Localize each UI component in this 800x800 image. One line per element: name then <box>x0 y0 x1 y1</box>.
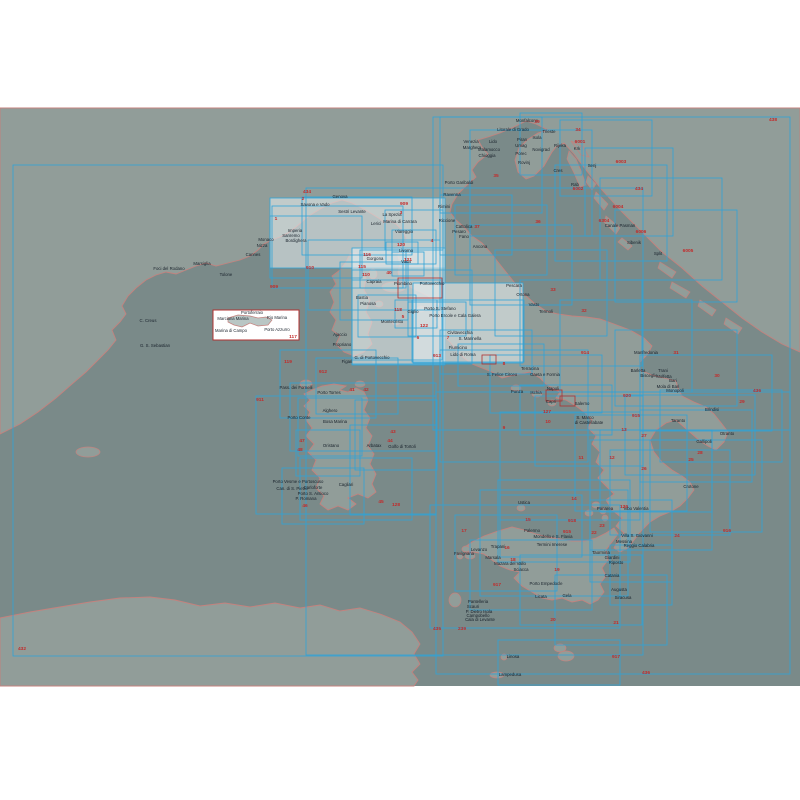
chart-number-label: 917 <box>493 582 501 588</box>
place-label: Bari <box>669 378 677 383</box>
chart-number-label: 37 <box>474 224 480 230</box>
place-label: Porto S. Stefano <box>424 306 456 311</box>
chart-number-label: 22 <box>591 530 597 536</box>
place-label: Novigrad <box>532 147 550 152</box>
place-label: Figari <box>342 359 353 364</box>
place-label: Lido di Roma <box>450 352 476 357</box>
inset-chart-number: 117 <box>289 334 297 340</box>
place-label: Gallipoli <box>696 439 711 444</box>
inset-place-label: Marciana Marina <box>217 316 249 321</box>
chart-number-label: 32 <box>581 308 587 314</box>
chart-number-label: 239 <box>458 626 466 632</box>
place-label: Portovecchio <box>420 281 445 286</box>
place-label: Tolone <box>220 272 233 277</box>
place-label: Ravenna <box>443 192 461 197</box>
chart-number-label: 915 <box>632 413 640 419</box>
chart-number-label: 5 <box>402 314 405 320</box>
place-label: Giglio <box>408 309 420 314</box>
place-label: Litorale di Grado <box>497 127 529 132</box>
chart-number-label: 436 <box>753 388 761 394</box>
chart-number-label: 920 <box>623 393 631 399</box>
chart-number-label: 110 <box>362 272 370 278</box>
place-label: Linosa <box>507 654 520 659</box>
chart-number-label: 7 <box>447 335 450 341</box>
chart-number-label: 432 <box>18 646 26 652</box>
place-label: Riccione <box>439 218 456 223</box>
place-label: Krk <box>574 146 581 151</box>
chart-number-label: 24 <box>674 533 680 539</box>
place-label: Marsiglia <box>193 261 211 266</box>
place-label: Piombino <box>394 281 413 286</box>
small-island <box>449 593 461 607</box>
place-label: Cagliari <box>339 482 354 487</box>
place-label: Reggio Calabria <box>624 543 655 548</box>
place-label: Siracusa <box>615 595 632 600</box>
chart-number-label: 35 <box>493 173 499 179</box>
place-label: Chioggia <box>479 153 497 158</box>
chart-number-label: 116 <box>363 252 371 258</box>
place-label: Viareggio <box>395 229 414 234</box>
chart-number-label: 23 <box>599 523 605 529</box>
small-island <box>517 505 525 511</box>
chart-number-label: 11 <box>578 455 583 461</box>
place-label: Favignana <box>454 551 475 556</box>
place-label: Lampedusa <box>499 672 522 677</box>
chart-number-label: 12 <box>609 455 615 461</box>
place-label: Cres <box>553 168 562 173</box>
chart-catalog-page: PortoferraioMarciana MarinaRio MarinaMar… <box>0 0 800 800</box>
place-label: G. S. Sebastian <box>140 343 171 348</box>
place-label: Trani <box>658 368 668 373</box>
place-label: Savona e Vado <box>300 202 330 207</box>
place-label: Isola <box>532 135 542 140</box>
chart-number-label: 120 <box>397 242 405 248</box>
chart-number-label: 2 <box>302 196 305 202</box>
inset-place-label: Rio Marina <box>267 315 288 320</box>
chart-number-label: 41 <box>349 387 355 393</box>
chart-number-label: 44 <box>387 438 393 444</box>
place-label: Oristano <box>323 443 340 448</box>
place-label: G. di Portovecchio <box>354 355 390 360</box>
chart-number-label: 6 <box>417 335 420 341</box>
place-label: Vasto <box>529 302 540 307</box>
chart-number-label: 130 <box>620 504 628 510</box>
chart-number-label: 6002 <box>573 186 584 192</box>
place-label: Porto Torres <box>317 390 340 395</box>
chart-number-label: 910 <box>306 265 314 271</box>
chart-number-label: 918 <box>568 518 576 524</box>
place-label: Ischia <box>530 390 542 395</box>
place-label: Ortona <box>516 292 530 297</box>
place-label: Bosa Marina <box>323 419 348 424</box>
chart-number-label: 43 <box>390 429 396 435</box>
place-label: Crotone <box>683 484 699 489</box>
place-label: Marina di Carrara <box>383 219 417 224</box>
place-label: Porto Garibaldi <box>445 180 474 185</box>
chart-number-label: 18 <box>510 557 516 563</box>
place-label: Pescara <box>506 283 522 288</box>
chart-number-label: 916 <box>723 528 731 534</box>
place-label: Rijeka <box>554 143 567 148</box>
place-label: Porec <box>515 151 527 156</box>
chart-number-label: 436 <box>642 670 650 676</box>
place-label: Ancona <box>473 244 488 249</box>
chart-number-label: 25 <box>688 457 694 463</box>
place-label: Terracina <box>521 366 539 371</box>
place-label: S. Felice Circeo <box>487 372 518 377</box>
chart-number-label: 47 <box>299 438 305 444</box>
place-label: Bordighera <box>285 238 307 243</box>
place-label: Rovinj <box>518 160 530 165</box>
place-label: Taranto <box>671 418 686 423</box>
place-label: Capraia <box>366 279 382 284</box>
place-label: P. Romana <box>296 496 318 501</box>
place-label: Civitavecchia <box>447 330 473 335</box>
chart-number-label: 6001 <box>575 139 586 145</box>
chart-number-label: 27 <box>641 433 647 439</box>
chart-number-label: 9 <box>503 425 506 431</box>
inset-place-label: Portoferraio <box>241 310 264 315</box>
place-label: Augusta <box>611 587 627 592</box>
chart-number-label: 26 <box>641 466 647 472</box>
place-label: Porto Vesme e Portoscuso <box>273 479 324 484</box>
place-label: Panarea <box>597 506 614 511</box>
chart-number-label: 42 <box>363 387 369 393</box>
place-label: Manfredonia <box>634 350 658 355</box>
place-label: Canale Pasman <box>605 223 636 228</box>
place-label: Salerno <box>575 401 590 406</box>
place-label: Ustica <box>518 500 531 505</box>
place-label: Catania <box>605 573 620 578</box>
chart-number-label: 48 <box>297 447 303 453</box>
small-island <box>355 381 365 387</box>
place-label: Alghero <box>323 408 338 413</box>
place-label: Umag <box>515 143 527 148</box>
chart-number-label: 6006 <box>636 229 647 235</box>
place-label: Nizza <box>257 243 268 248</box>
place-label: Senj <box>588 163 597 168</box>
place-label: Rimini <box>438 204 450 209</box>
place-label: Ponza <box>511 389 524 394</box>
inset-place-label: Marina di Campo <box>215 328 248 333</box>
chart-number-label: 28 <box>697 450 703 456</box>
place-label: Porto Ercole e Cala Galera <box>429 313 481 318</box>
place-label: Golfo di Tortoli <box>388 444 415 449</box>
chart-number-label: 30 <box>714 373 720 379</box>
chart-number-label: 915 <box>563 529 571 535</box>
chart-number-label: 14 <box>571 496 577 502</box>
place-label: Montecristo <box>381 319 404 324</box>
place-label: Arbatax <box>367 443 383 448</box>
chart-number-label: 6003 <box>616 159 627 165</box>
chart-number-label: 4 <box>431 238 434 244</box>
chart-number-label: 128 <box>392 502 400 508</box>
place-label: Sciacca <box>513 567 529 572</box>
place-label: Termoli <box>539 309 553 314</box>
chart-number-label: 118 <box>394 307 402 313</box>
place-label: S. Marinella <box>459 336 482 341</box>
place-label: Ajaccio <box>333 332 347 337</box>
place-label: Propriano <box>333 342 352 347</box>
small-island <box>76 447 100 457</box>
place-label: Riposto <box>609 560 624 565</box>
place-label: Palermo <box>524 528 541 533</box>
chart-number-label: 6005 <box>683 248 694 254</box>
general-chart-area <box>413 283 523 363</box>
place-label: Genova <box>332 194 348 199</box>
place-label: Capri <box>546 399 556 404</box>
place-label: Termini Imerese <box>537 542 568 547</box>
chart-number-label: 438 <box>769 117 777 123</box>
chart-number-label: 127 <box>543 409 551 415</box>
chart-number-label: 3 <box>400 210 403 216</box>
chart-number-label: 434 <box>635 186 643 192</box>
place-label: Otranto <box>720 431 735 436</box>
chart-number-label: 121 <box>404 257 412 263</box>
place-label: Fano <box>459 234 469 239</box>
chart-number-label: 8 <box>503 361 506 367</box>
chart-number-label: 46 <box>302 503 308 509</box>
place-label: Carloforte <box>304 485 323 490</box>
chart-number-label: 917 <box>612 654 620 660</box>
place-label: Porto Conte <box>288 415 312 420</box>
chart-number-label: 6004 <box>613 204 624 210</box>
place-label: Brindisi <box>705 407 719 412</box>
place-label: Piran <box>517 137 528 142</box>
place-label: Porto Empedocle <box>530 581 564 586</box>
place-label: Licata <box>535 594 547 599</box>
chart-number-label: 39 <box>534 119 540 125</box>
place-label: Sibenik <box>627 240 642 245</box>
chart-number-label: 909 <box>400 201 408 207</box>
chart-number-label: 33 <box>550 287 556 293</box>
chart-number-label: 119 <box>284 359 292 365</box>
place-label: di Castellabate <box>575 420 604 425</box>
chart-number-label: 913 <box>433 353 441 359</box>
chart-number-label: 13 <box>621 427 627 433</box>
place-label: Pianosa <box>360 301 376 306</box>
chart-number-label: 21 <box>613 620 619 626</box>
place-label: Lerici <box>371 221 381 226</box>
chart-number-label: 20 <box>550 617 556 623</box>
chart-number-label: 122 <box>420 323 428 329</box>
chart-number-label: 34 <box>575 127 581 133</box>
nautical-chart-index-map: PortoferraioMarciana MarinaRio MarinaMar… <box>0 0 800 800</box>
chart-number-label: 1 <box>275 216 278 222</box>
chart-number-label: 10 <box>545 419 551 425</box>
place-label: Bastia <box>356 295 369 300</box>
chart-number-label: 911 <box>256 397 264 403</box>
chart-number-label: 16 <box>504 545 510 551</box>
place-label: Trapani <box>491 544 505 549</box>
place-label: Villa S. Giovanni <box>621 533 652 538</box>
place-label: Malamocco <box>478 147 501 152</box>
place-label: Marsala <box>485 555 501 560</box>
chart-number-label: 19 <box>554 567 560 573</box>
inset-place-label: Porto Azzurro <box>264 327 290 332</box>
place-label: Monaco <box>258 237 274 242</box>
chart-number-label: 45 <box>378 499 384 505</box>
chart-number-label: 115 <box>358 264 366 270</box>
chart-number-label: 31 <box>673 350 679 356</box>
chart-number-label: 40 <box>386 270 392 276</box>
chart-number-label: 909 <box>270 284 278 290</box>
chart-number-label: 29 <box>739 399 745 405</box>
place-label: Cala di Levante <box>465 617 495 622</box>
place-label: Gaeta e Formia <box>530 372 560 377</box>
chart-number-label: 36 <box>535 219 541 225</box>
small-island <box>558 651 574 661</box>
place-label: Fiumicino <box>449 345 468 350</box>
place-label: Napoli <box>547 386 559 391</box>
place-label: Cannes <box>246 252 261 257</box>
place-label: Monopoli <box>666 388 683 393</box>
place-label: Sestri Levante <box>338 209 366 214</box>
place-label: Trieste <box>543 129 557 134</box>
chart-number-label: 914 <box>581 350 589 356</box>
place-label: Pass. dei Fornelli <box>280 385 313 390</box>
place-label: Livorno <box>399 248 414 253</box>
chart-number-label: 435 <box>433 626 441 632</box>
place-label: Venezia <box>463 139 479 144</box>
place-label: Foci del Rodano <box>153 266 185 271</box>
chart-number-label: 912 <box>319 369 327 375</box>
place-label: Lido <box>489 139 498 144</box>
place-label: C. Creus <box>140 318 157 323</box>
place-label: Gela <box>562 593 572 598</box>
chart-number-label: 15 <box>525 517 531 523</box>
place-label: Split <box>654 251 663 256</box>
chart-number-label: 6304 <box>599 218 610 224</box>
land-africa <box>0 597 420 686</box>
chart-number-label: 434 <box>303 189 311 195</box>
chart-number-label: 17 <box>461 528 467 534</box>
